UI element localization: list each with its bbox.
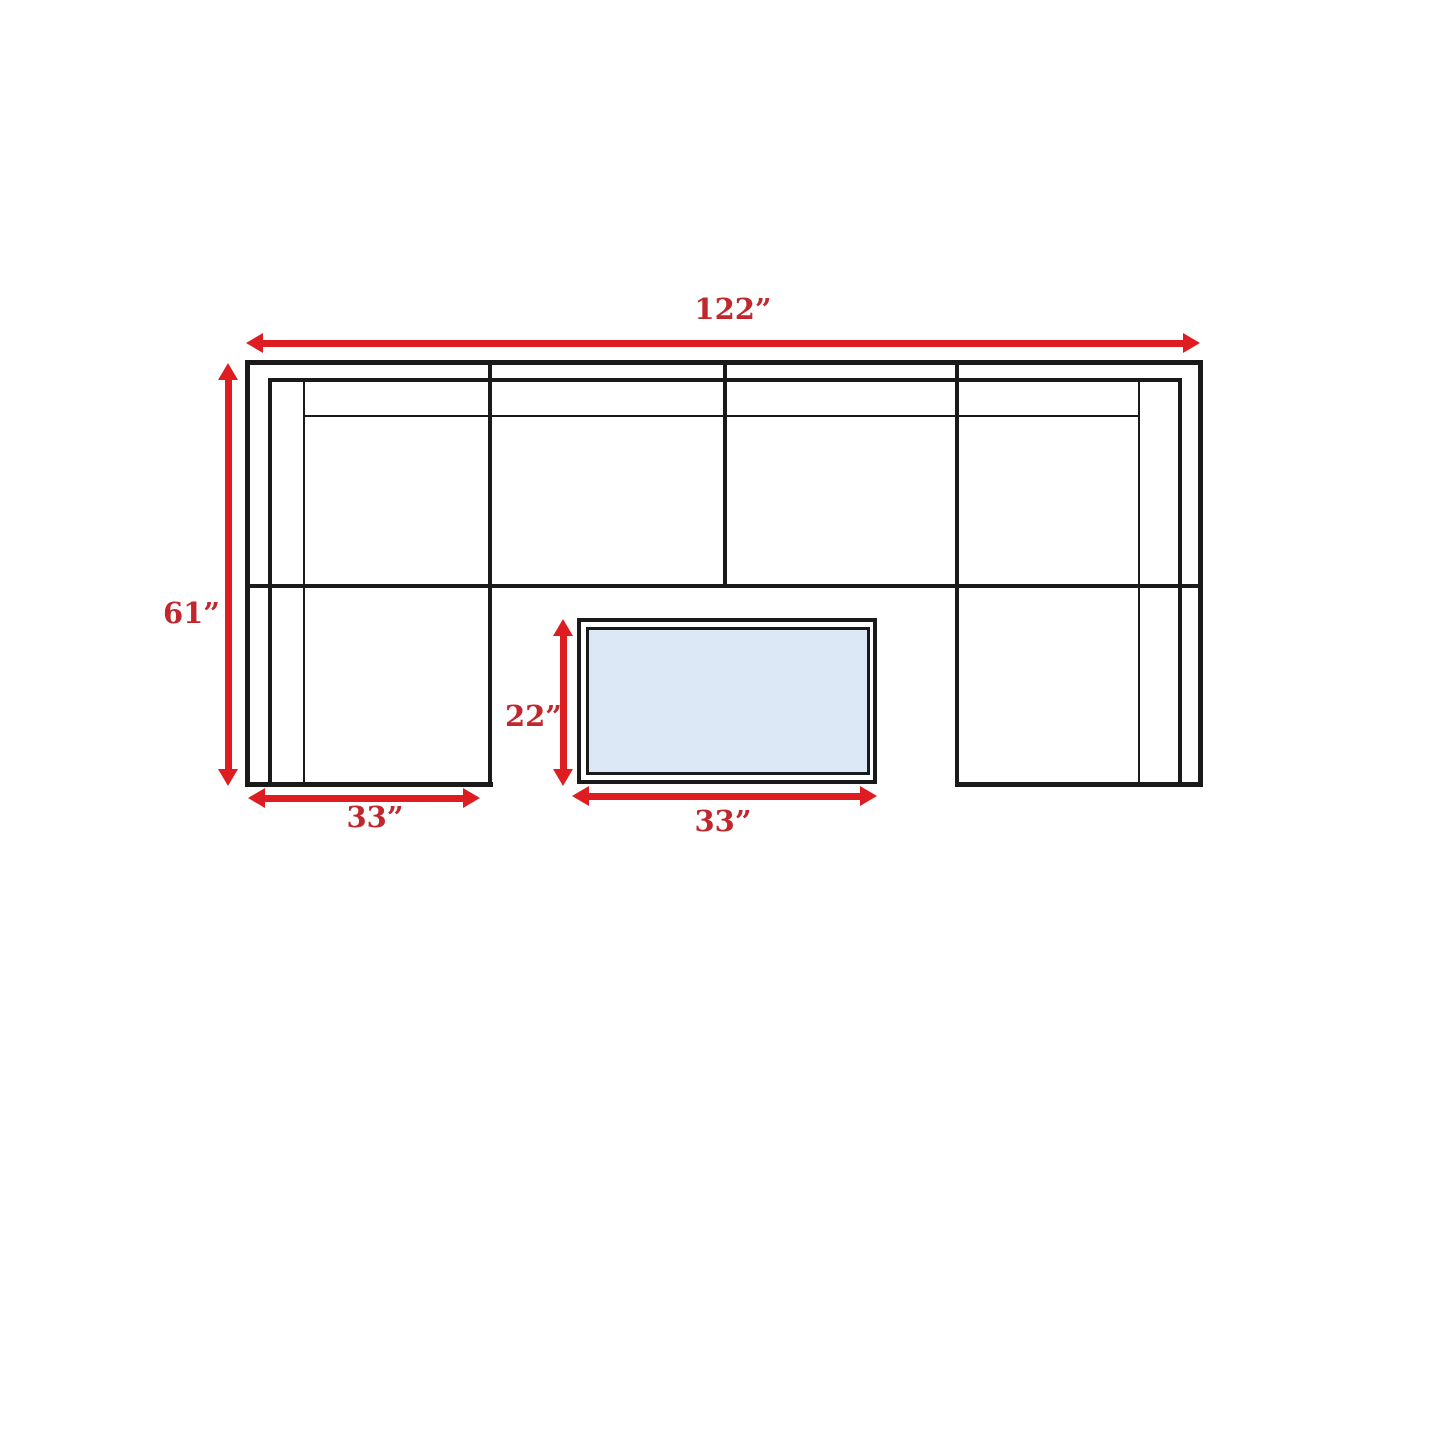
arrow-shaft bbox=[585, 793, 864, 800]
arrowhead-right-icon bbox=[860, 786, 877, 806]
arrowhead-right-icon bbox=[463, 788, 480, 808]
overall-depth-arrow bbox=[218, 363, 238, 786]
coffee-table-width-arrow bbox=[572, 786, 877, 806]
sofa-left-cushion-line bbox=[303, 380, 305, 782]
sofa-dimension-diagram: 122” 61” 33” 22” 33” bbox=[0, 0, 1445, 1445]
arrow-shaft bbox=[259, 340, 1187, 347]
left-chaise-width-label: 33” bbox=[305, 803, 445, 832]
arrow-shaft bbox=[225, 376, 232, 773]
left-chaise-front-line bbox=[245, 782, 493, 787]
arrowhead-down-icon bbox=[218, 769, 238, 786]
sofa-outer-right-line bbox=[1198, 360, 1203, 787]
sofa-right-cushion-line bbox=[1138, 380, 1140, 782]
sofa-seat-divider-right bbox=[955, 360, 959, 787]
overall-width-arrow bbox=[246, 333, 1200, 353]
coffee-table-top bbox=[586, 627, 870, 775]
sofa-inner-right-arm-line bbox=[1178, 378, 1182, 787]
right-chaise-front-line bbox=[955, 782, 1203, 787]
coffee-table-depth-label: 22” bbox=[490, 702, 562, 731]
sofa-seat-divider-middle bbox=[723, 360, 727, 588]
sofa-outer-left-line bbox=[245, 360, 250, 787]
sofa-inner-left-arm-line bbox=[268, 378, 272, 787]
arrowhead-right-icon bbox=[1183, 333, 1200, 353]
sofa-back-cushion-line bbox=[304, 415, 1139, 417]
coffee-table-width-label: 33” bbox=[653, 807, 793, 836]
arrowhead-down-icon bbox=[553, 769, 573, 786]
overall-depth-label: 61” bbox=[150, 599, 220, 628]
overall-width-label: 122” bbox=[660, 295, 806, 324]
